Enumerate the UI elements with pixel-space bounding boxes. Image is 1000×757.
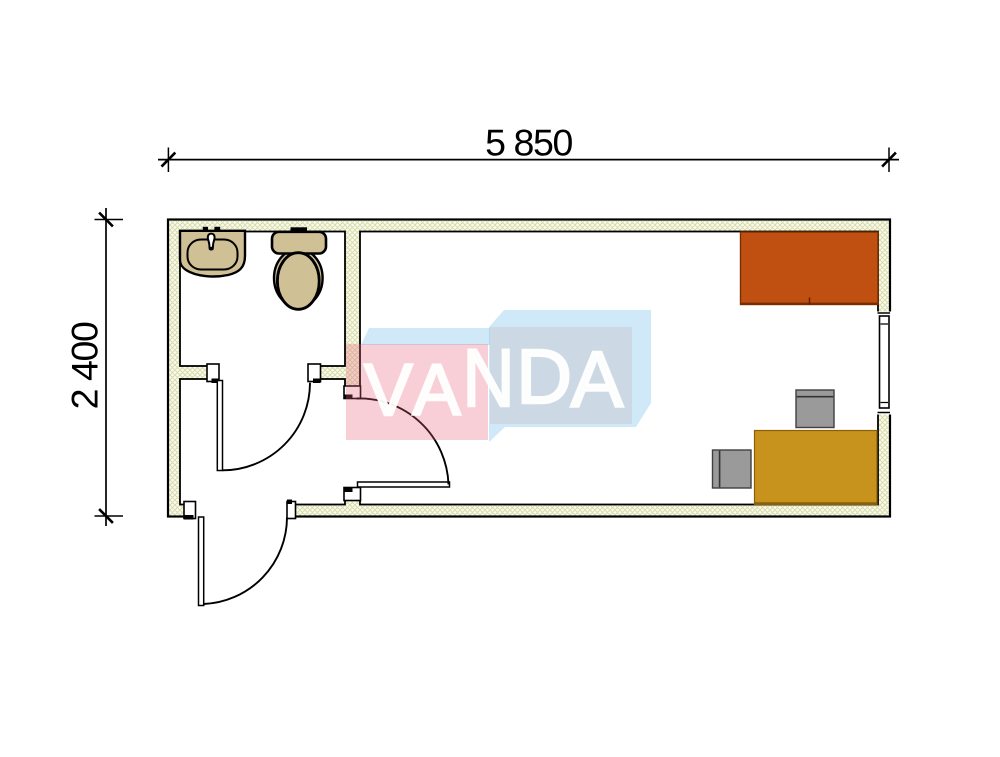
svg-text:A: A: [571, 334, 624, 423]
svg-text:5 850: 5 850: [485, 122, 572, 164]
svg-text:A: A: [412, 350, 460, 430]
svg-text:N: N: [462, 333, 514, 424]
svg-text:V: V: [364, 350, 413, 431]
svg-text:2 400: 2 400: [64, 322, 106, 409]
svg-text:D: D: [516, 334, 572, 420]
